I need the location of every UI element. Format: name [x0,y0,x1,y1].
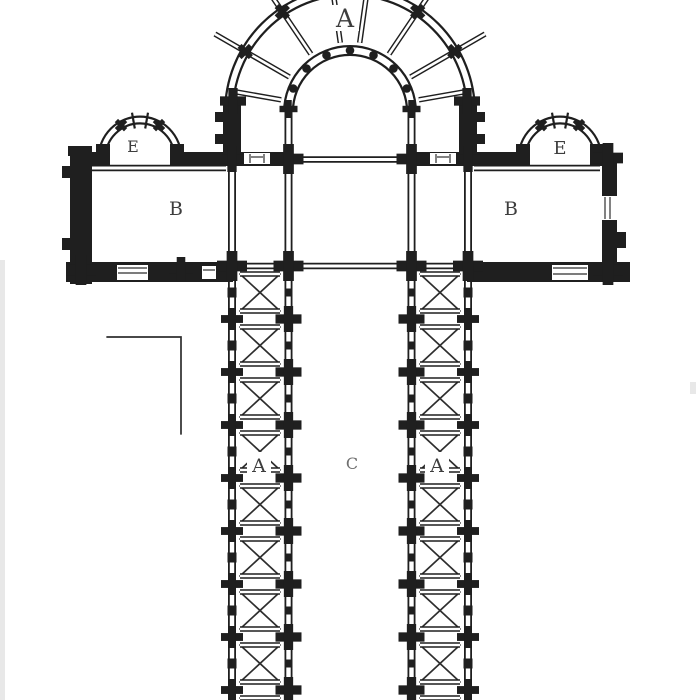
arcade-tick [408,395,416,403]
pier-cross-bar [284,465,293,491]
pier-cross-bar [464,520,472,542]
pier-cross-bar [227,146,236,172]
ambulatory-rib-core [411,54,452,78]
pier-cross-bar [407,412,416,438]
arcade-tick [408,554,416,562]
arcade-tick [408,607,416,615]
pier-cross-bar [227,251,238,281]
pier-cross-bar [228,414,236,436]
thick-wall [477,134,485,144]
door-opening [202,266,216,279]
label-transept-right: B [504,198,518,220]
pier-cross-bar [284,306,293,332]
wall-window-tick [464,341,473,351]
pier-cross-bar [463,146,472,172]
chapel-tick [565,113,568,129]
arcade-tick [285,342,293,350]
pier-cross-bar [228,467,236,489]
arcade-tick [408,501,416,509]
arcade-tick [408,289,416,297]
chapel-tick [132,113,135,129]
label-aisle-left: A [251,455,266,477]
pier-cross-bar [464,626,472,648]
wall-window-tick [228,606,237,616]
ambulatory-rib-core [285,15,311,54]
scan-edge-artifact [0,260,5,700]
cloister-corner-mark [107,337,181,434]
apse-column [346,46,355,55]
label-chapel-left: E [127,137,139,156]
wall-openings [117,153,617,280]
thick-wall [516,144,530,166]
wall-window-tick [464,288,473,298]
wall-window-tick [464,500,473,510]
thick-wall [215,112,223,122]
pier-cross-bar [407,359,416,385]
apse-column [302,64,311,73]
pier-cross-bar [603,255,614,285]
thick-wall [170,144,184,166]
thick-wall [617,232,626,248]
ambulatory-opening [430,153,456,164]
pier-cross-bar [283,251,294,281]
label-transept-left: B [169,198,183,220]
pier-cross-bar [408,100,414,118]
label-aisle-right: A [429,455,444,477]
apse-column [369,51,378,60]
pier-cross-bar [284,412,293,438]
pier-cross [403,100,421,118]
wall-window-tick [228,659,237,669]
pier-cross-bar [177,257,186,281]
pier-cross-bar [228,308,236,330]
pier-cross-bar [285,100,291,118]
wall-window-tick [464,606,473,616]
arcade-tick [285,607,293,615]
pier-cross-bar [283,144,294,174]
arcade-tick [408,660,416,668]
pier-cross-bar [228,679,236,700]
chapel-tick [145,113,148,129]
ambulatory-opening [244,153,270,164]
pier-cross-bar [228,88,237,114]
door-opening [552,265,588,280]
ambulatory-rib-core [458,34,485,50]
arcade-tick [285,660,293,668]
arcade-tick [408,448,416,456]
apse-arcade-wall-inner [289,50,412,112]
chapel-tick [552,113,555,129]
arcade-tick [408,342,416,350]
pier-cross-bar [407,465,416,491]
label-nave: C [346,454,358,473]
wall-window-tick [228,288,237,298]
pier-cross-bar [464,361,472,383]
pier-cross-bar [463,251,474,281]
pier-cross-bar [462,88,471,114]
pier-cross-bar [284,359,293,385]
pier-cross-bar [228,361,236,383]
wall-window-tick [228,553,237,563]
wall-window-tick [228,394,237,404]
pier-cross-bar [407,624,416,650]
pier-cross-bar [406,144,417,174]
pier-cross-bar [603,143,614,173]
ambulatory-rib-core [389,15,415,54]
chapel-left-wall [102,120,178,158]
pier-cross [280,100,298,118]
pier-cross-bar [464,414,472,436]
apse-column [403,84,412,93]
wall-window-tick [228,500,237,510]
apse-column [389,64,398,73]
church-floor-plan: A E E B B A C A [0,0,700,700]
pier-cross-bar [407,306,416,332]
label-chapel-right: E [553,138,566,159]
pier-cross-bar [464,573,472,595]
church-floor-plan-page: A E E B B A C A [0,0,700,700]
pier-cross [274,144,304,174]
pier-cross-bar [284,624,293,650]
pier-cross-bar [228,520,236,542]
pier-cross-bar [284,677,293,700]
thick-wall [62,166,70,178]
pier-cross-bar [228,626,236,648]
pier-cross [397,144,427,174]
plan-labels: A E E B B A C A [127,4,566,477]
pier-cross-bar [407,571,416,597]
apse-arcade-wall [289,50,412,112]
pier-cross-bar [464,467,472,489]
apse-column [289,84,298,93]
pier-cross-bar [284,571,293,597]
pier-cross-bar [407,518,416,544]
arcade-tick [285,289,293,297]
arcade-tick [285,554,293,562]
label-apse-ambulatory: A [335,4,355,33]
thick-wall [215,134,223,144]
pier-cross-bar [76,255,87,285]
arcade-tick [285,395,293,403]
masonry-fills [62,0,630,700]
pier-cross-bar [406,251,417,281]
pier-cross-bar [284,518,293,544]
pier-cross-bar [464,679,472,700]
ambulatory-rib-core [215,34,242,50]
arcade-tick [285,501,293,509]
wall-window-tick [464,394,473,404]
pier-cross-bar [407,677,416,700]
wall-window-tick [464,447,473,457]
apse-column [322,51,331,60]
wall-window-tick [228,447,237,457]
wall-window-tick [228,341,237,351]
pier-cross-bar [464,308,472,330]
thick-wall [96,144,110,166]
wall-window-tick [464,553,473,563]
pier-cross-bar [228,573,236,595]
thick-wall [477,112,485,122]
thick-wall [62,238,70,250]
scan-spot-artifact [690,382,696,394]
arcade-tick [285,448,293,456]
wall-window-tick [464,659,473,669]
ambulatory-rib-core [249,54,290,78]
